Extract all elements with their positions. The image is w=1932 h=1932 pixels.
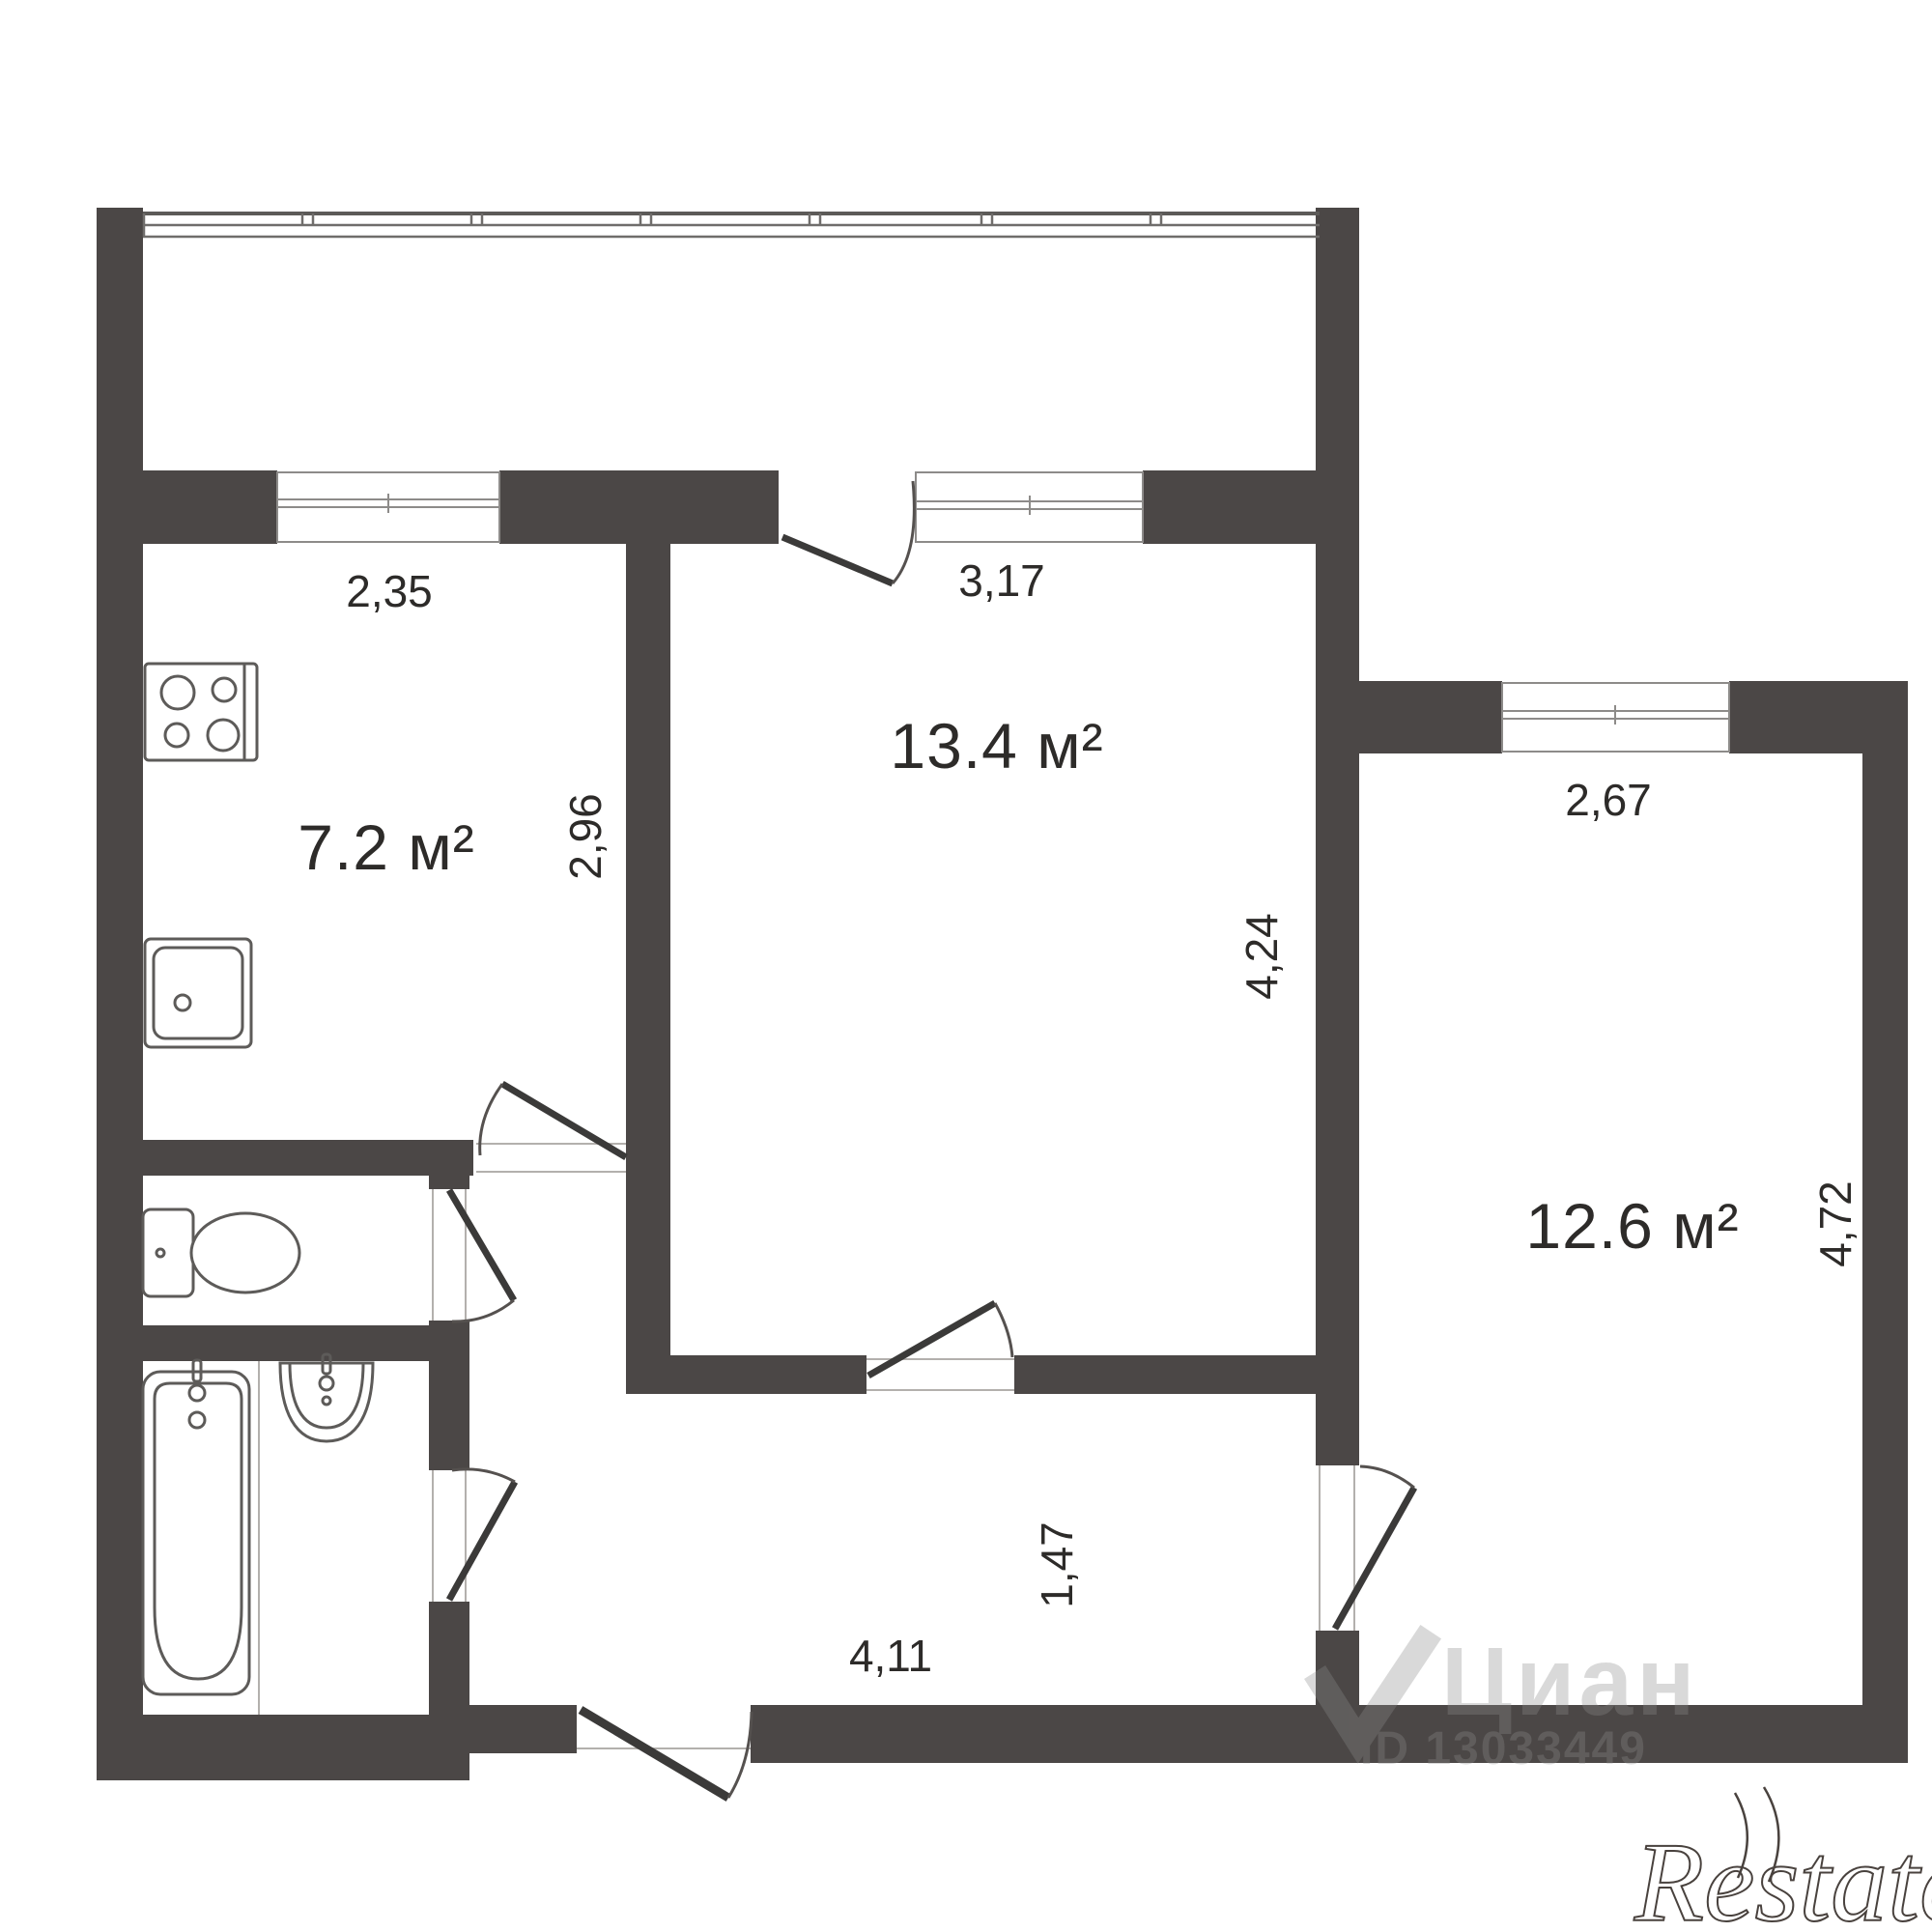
wall-living-bottom-right: [1014, 1355, 1316, 1394]
wall-living-bottom-left: [626, 1355, 867, 1394]
wall-bath-door-stub-bottom: [429, 1602, 469, 1705]
floor-plan-page: 7.2 м² 13.4 м² 12.6 м² 2,35 3,17 2,96 4,…: [0, 0, 1932, 1932]
wall-wc-top: [143, 1140, 473, 1176]
dim-kitchen-depth: 2,96: [560, 793, 611, 880]
wall-bottom-hall-left: [429, 1705, 577, 1753]
dim-bedroom-entry: 1,47: [1032, 1521, 1082, 1608]
dim-living-depth: 4,24: [1236, 913, 1287, 1000]
kitchen-window: [277, 472, 499, 542]
cian-logo-text: Циан: [1441, 1628, 1699, 1736]
wall-living-top-right: [1143, 470, 1316, 544]
dim-living-width: 3,17: [958, 555, 1045, 606]
wall-living-right: [1316, 208, 1359, 1465]
wall-exterior-left: [97, 208, 143, 1780]
wall-kitchen-top-left: [143, 470, 277, 544]
bedroom-window: [1502, 683, 1729, 752]
wall-bathroom-bottom: [97, 1715, 469, 1780]
living-room-window: [916, 472, 1143, 542]
wall-wc-bath-mid: [429, 1321, 469, 1470]
wall-wc-bottom: [143, 1325, 429, 1361]
bathtub-icon: [143, 1360, 249, 1694]
wall-kitchen-top-right: [499, 470, 779, 544]
dim-bedroom-window: 2,67: [1565, 775, 1652, 825]
kitchen-area-label: 7.2 м²: [298, 811, 474, 883]
stove-icon: [145, 664, 257, 760]
wall-bedroom-top-right: [1729, 681, 1864, 753]
kitchen-sink-icon: [145, 939, 251, 1047]
living-room-area-label: 13.4 м²: [890, 710, 1103, 781]
restate-logo-text: Restate: [1634, 1819, 1932, 1932]
cian-id-text: ID 13033449: [1360, 1723, 1647, 1775]
toilet-icon: [143, 1209, 299, 1296]
wall-wc-door-stub-top: [429, 1176, 469, 1189]
wall-bedroom-top-left: [1359, 681, 1502, 753]
wall-kitchen-living-divider: [626, 544, 670, 1394]
dim-bedroom-depth: 4,72: [1810, 1180, 1861, 1267]
dim-kitchen-window: 2,35: [346, 566, 433, 616]
dim-hallway-width: 4,11: [849, 1631, 932, 1681]
bedroom-area-label: 12.6 м²: [1525, 1190, 1739, 1262]
floor-plan-drawing: 7.2 м² 13.4 м² 12.6 м² 2,35 3,17 2,96 4,…: [0, 0, 1932, 1932]
wall-exterior-right: [1862, 681, 1908, 1763]
